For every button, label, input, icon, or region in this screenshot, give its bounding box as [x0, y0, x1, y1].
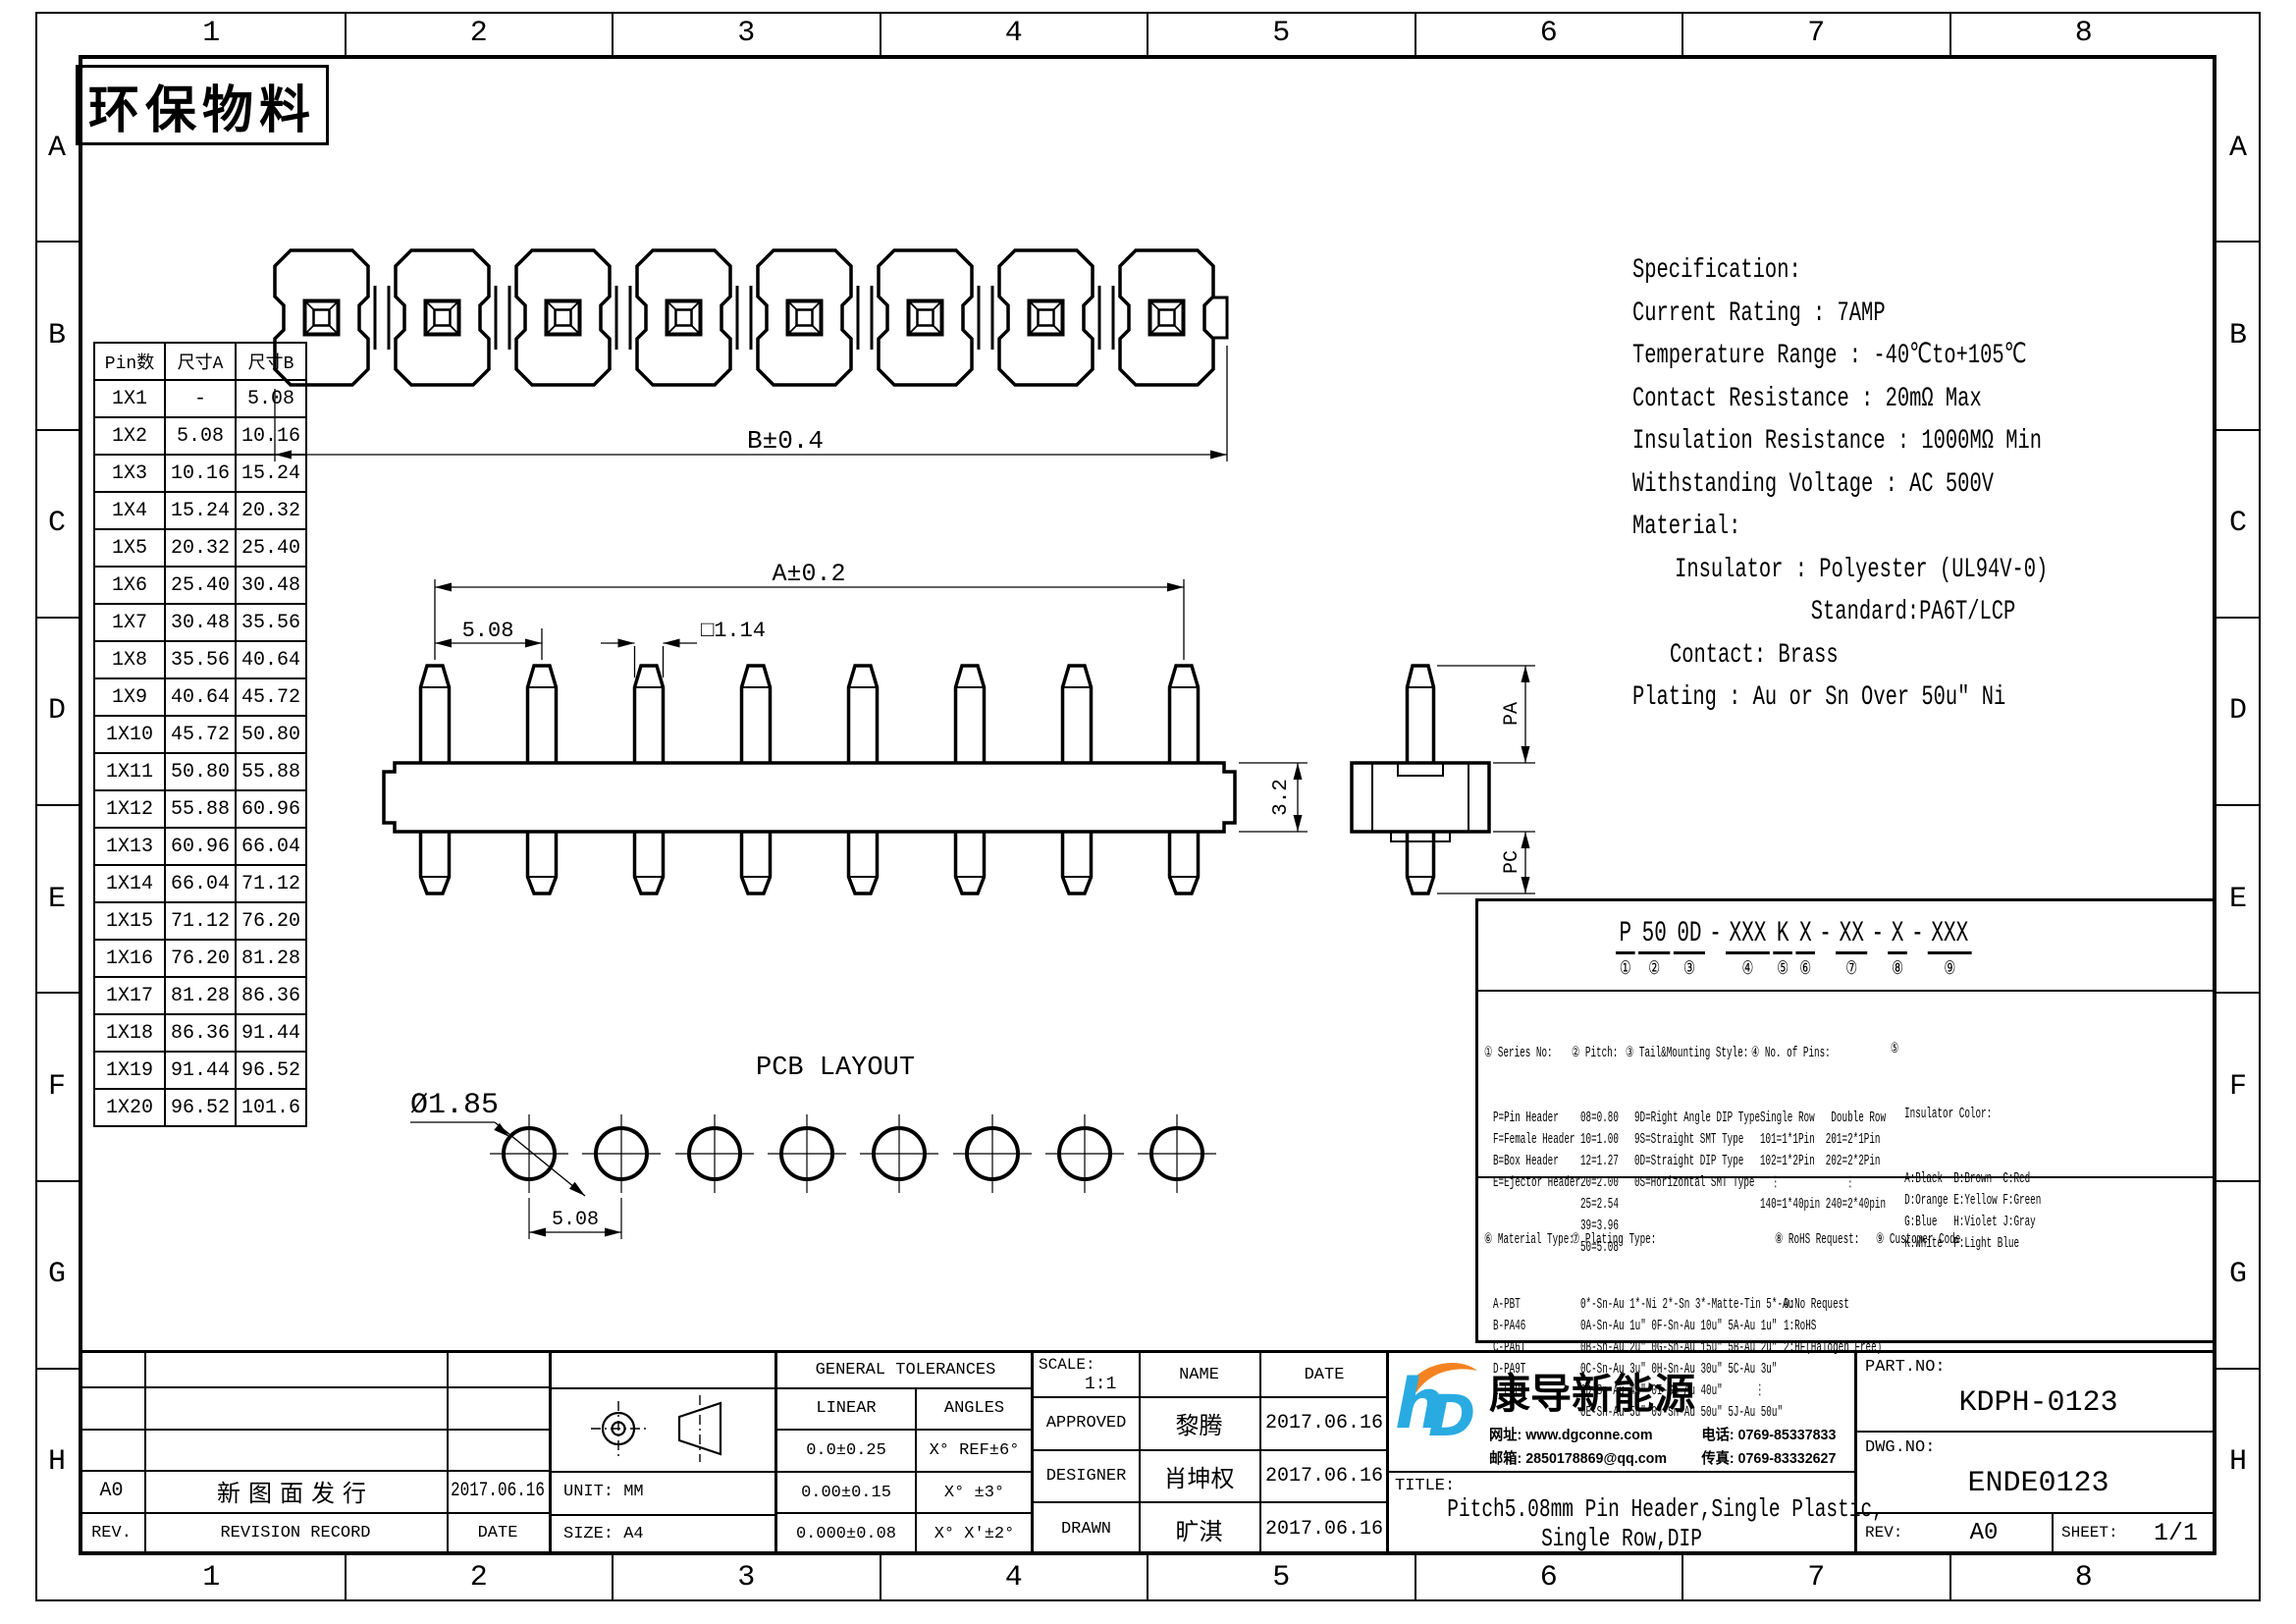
drawing-title-line2: Single Row,DIP: [1447, 1524, 1796, 1553]
signoff-rows: APPROVED 黎腾 2017.06.16 DESIGNER 肖坤权 2017…: [1034, 1396, 1389, 1554]
dim-label-pc: PC: [1501, 850, 1523, 874]
third-angle-projection-icon: [552, 1387, 774, 1471]
specification-block: Specification: Current Rating : 7AMP Tem…: [1632, 249, 2091, 720]
tolerances-row: 0.0±0.25 X° REF±6°: [777, 1429, 1034, 1471]
code-segment-index: ①: [1620, 957, 1631, 983]
legend-item: P=Pin Header: [1484, 1108, 1580, 1129]
part-info-cell: PART.NO: KDPH-0123 DWG.NO: ENDE0123 REV:…: [1854, 1353, 2216, 1554]
tolerances-row: 0.000±0.08 X° X'±2°: [777, 1512, 1034, 1554]
dimension-body-height: 3.2: [1239, 763, 1308, 832]
general-tolerances-table: GENERAL TOLERANCES LINEAR ANGLES 0.0±0.2…: [774, 1353, 1031, 1554]
legend-item: 10=1.00: [1572, 1129, 1619, 1151]
code-segment: 0D ③: [1674, 917, 1705, 983]
legend-item: 08=0.80: [1572, 1108, 1619, 1129]
legend-index: ⑤: [1891, 1039, 2041, 1060]
top-view: [275, 250, 1227, 385]
code-segment-index: ⑥: [1799, 957, 1811, 983]
dim-label-pitch: 5.08: [462, 619, 514, 643]
legend-item: 0:No Request: [1775, 1294, 1882, 1316]
company-website: 网址: www.dgconne.com: [1489, 1424, 1653, 1444]
dim-label-pa: PA: [1501, 702, 1523, 726]
code-segment-text: -: [1910, 917, 1924, 950]
legend-title: Insulator Color:: [1891, 1104, 2041, 1125]
signoff-date: 2017.06.16: [1259, 1503, 1389, 1554]
company-contact-line2: 邮箱: 2850178869@qq.com 传真: 0769-83332627: [1489, 1447, 1836, 1468]
tolerance-angle-value: X° REF±6°: [915, 1431, 1034, 1471]
code-segment-text: XXX: [1726, 917, 1770, 954]
scale-value: 1:1: [1085, 1375, 1116, 1394]
part-no-label: PART.NO:: [1865, 1358, 1946, 1377]
code-segment: K ⑤: [1773, 917, 1792, 983]
legend-item: A-PBT: [1484, 1294, 1575, 1316]
legend-title: ① Series No:: [1484, 1043, 1580, 1064]
code-segment-text: 0D: [1674, 917, 1705, 954]
front-view: [384, 666, 1235, 893]
code-segment: XXX ⑨: [1928, 917, 1972, 983]
rev-value: A0: [1916, 1512, 2052, 1554]
tolerances-title: GENERAL TOLERANCES: [777, 1353, 1034, 1387]
signoff-date: 2017.06.16: [1259, 1451, 1389, 1502]
company-name: 康导新能源: [1489, 1361, 1850, 1421]
code-segment-index: ⑧: [1892, 957, 1903, 983]
signoff-name: 肖坤权: [1139, 1451, 1259, 1502]
revision-table: A0 新图面发行 2017.06.16 REV. REVISION RECORD…: [79, 1353, 549, 1554]
code-segment: -: [1910, 917, 1924, 979]
code-segment-text: -: [1819, 917, 1833, 950]
dim-label-b: B±0.4: [747, 426, 824, 456]
specification-line: Withstanding Voltage : AC 500V: [1632, 463, 2091, 507]
legend-item: 102=1*2Pin 202=2*2Pin: [1751, 1151, 1886, 1172]
legend-item: F=Female Header: [1484, 1129, 1580, 1151]
company-title-cell: h D 康导新能源 网址: www.dgconne.com 电话: 0769-8…: [1386, 1353, 1854, 1554]
pcb-layout-title: PCB LAYOUT: [756, 1054, 915, 1083]
dim-label-pin-square: □1.14: [701, 619, 766, 643]
code-segment-index: ⑨: [1944, 957, 1955, 983]
rev-label: REV:: [1865, 1524, 1902, 1542]
drawing-title-line1: Pitch5.08mm Pin Header,Single Plastic,: [1447, 1494, 1796, 1524]
name-header: NAME: [1139, 1353, 1259, 1396]
code-segment: XXX ④: [1726, 917, 1770, 983]
code-box-divider: [1478, 990, 2214, 992]
code-segment: -: [1819, 917, 1833, 979]
title-block: A0 新图面发行 2017.06.16 REV. REVISION RECORD…: [79, 1350, 2216, 1554]
code-segment-text: K: [1773, 917, 1792, 954]
date-header: DATE: [1259, 1353, 1389, 1396]
legend-item: 1:RoHS: [1775, 1316, 1882, 1337]
specification-line: Contact Resistance : 20mΩ Max: [1632, 378, 2091, 421]
signoff-role: DESIGNER: [1034, 1451, 1139, 1502]
specification-line: Plating : Au or Sn Over 50u″ Ni: [1632, 677, 2091, 720]
dimension-pin-square: □1.14: [601, 619, 766, 677]
specification-line: Standard:PA6T/LCP: [1632, 591, 2091, 634]
revision-rev-value: A0: [79, 1470, 144, 1512]
tolerance-angle-value: X° X'±2°: [915, 1514, 1034, 1554]
legend-title: ④ No. of Pins:: [1751, 1043, 1886, 1064]
tolerance-linear-value: 0.0±0.25: [777, 1431, 915, 1471]
legend-item: 9D=Right Angle DIP Type: [1626, 1108, 1760, 1129]
pcb-layout-view: PCB LAYOUT Ø1.85 5.08: [410, 1054, 1216, 1239]
company-logo: h D: [1395, 1357, 1485, 1441]
signoff-name: 黎腾: [1139, 1398, 1259, 1449]
code-segment-text: X: [1795, 917, 1815, 954]
dwg-no-value: ENDE0123: [1857, 1459, 2219, 1508]
part-number-code-box: P ① 50 ② 0D ③ - XXX: [1475, 898, 2216, 1343]
side-view: [1352, 666, 1489, 893]
revision-rev-header: REV.: [79, 1512, 144, 1554]
specification-line: Temperature Range : -40℃to+105℃: [1632, 335, 2091, 378]
tolerances-row: 0.00±0.15 X° ±3°: [777, 1471, 1034, 1513]
dim-label-body-height: 3.2: [1270, 779, 1293, 816]
company-phone: 电话: 0769-85337833: [1701, 1424, 1836, 1444]
dim-label-a: A±0.2: [772, 560, 845, 588]
legend-item: 101=1*1Pin 201=2*1Pin: [1751, 1129, 1886, 1151]
tolerance-linear-value: 0.00±0.15: [777, 1473, 915, 1513]
signoff-row: DRAWN 旷淇 2017.06.16: [1034, 1501, 1389, 1554]
code-segment: XX ⑦: [1836, 917, 1867, 983]
signoff-name: 旷淇: [1139, 1503, 1259, 1554]
unit-label: UNIT: MM: [563, 1483, 644, 1501]
signoff-role: APPROVED: [1034, 1398, 1139, 1449]
legend-title: ⑥ Material Type:: [1484, 1229, 1575, 1251]
code-segment: X ⑧: [1888, 917, 1907, 983]
title-label: TITLE:: [1395, 1477, 1455, 1495]
legend-title: ② Pitch:: [1572, 1043, 1619, 1064]
legend-customer-code: ⑨ Customer Code: [1876, 1186, 1960, 1294]
revision-record-header: REVISION RECORD: [144, 1512, 447, 1554]
tolerances-col-linear: LINEAR: [777, 1387, 915, 1429]
dim-label-hole-dia: Ø1.85: [410, 1089, 499, 1122]
legend-title: ③ Tail&Mounting Style:: [1626, 1043, 1760, 1064]
code-segment-index: ⑦: [1845, 957, 1857, 983]
code-segment-index: ⑤: [1777, 957, 1789, 983]
legend-item: 0D=Straight DIP Type: [1626, 1151, 1760, 1172]
code-segment-text: -: [1709, 917, 1723, 950]
scale-label: SCALE:: [1039, 1356, 1095, 1374]
code-segment-text: 50: [1638, 917, 1670, 954]
projection-unit-size-cell: UNIT: MM SIZE: A4: [549, 1353, 774, 1554]
signoff-table: SCALE: 1:1 NAME DATE APPROVED 黎腾 2017.06…: [1031, 1353, 1386, 1554]
code-segment-index: ②: [1648, 957, 1660, 983]
specification-line: Insulator : Polyester (UL94V-0): [1632, 549, 2091, 592]
size-label: SIZE: A4: [563, 1525, 644, 1543]
signoff-date: 2017.06.16: [1259, 1398, 1389, 1449]
part-no-value: KDPH-0123: [1857, 1379, 2219, 1428]
dimension-pin-length-bottom: PC: [1437, 832, 1535, 893]
revision-date-header: DATE: [447, 1512, 549, 1554]
tolerance-linear-value: 0.000±0.08: [777, 1514, 915, 1554]
dwg-no-label: DWG.NO:: [1865, 1438, 1935, 1457]
tolerances-rows: 0.0±0.25 X° REF±6° 0.00±0.15 X° ±3° 0.00…: [777, 1429, 1034, 1554]
dimension-front-overall: A±0.2: [435, 560, 1184, 660]
legend-item: Single Row Double Row: [1751, 1108, 1886, 1129]
code-segment-index: ④: [1741, 957, 1753, 983]
signoff-role: DRAWN: [1034, 1503, 1139, 1554]
code-segment: X ⑥: [1795, 917, 1815, 983]
code-segment: P ①: [1616, 917, 1635, 983]
company-contact-line1: 网址: www.dgconne.com 电话: 0769-85337833: [1489, 1424, 1836, 1444]
legend-title: ⑨ Customer Code: [1876, 1229, 1960, 1251]
code-segment: -: [1871, 917, 1885, 979]
code-segment: -: [1709, 917, 1723, 979]
revision-date-value: 2017.06.16: [456, 1470, 538, 1512]
specification-line: Specification:: [1632, 249, 2091, 293]
dimension-front-pitch: 5.08: [435, 619, 542, 660]
company-email: 邮箱: 2850178869@qq.com: [1489, 1447, 1667, 1468]
code-segment-text: P: [1616, 917, 1635, 954]
legend-item: 12=1.27: [1572, 1151, 1619, 1172]
dim-label-pcb-pitch: 5.08: [552, 1209, 599, 1231]
part-number-code: P ① 50 ② 0D ③ - XXX: [1616, 917, 1972, 983]
sheet-value: 1/1: [2132, 1512, 2219, 1554]
tolerances-col-angles: ANGLES: [915, 1387, 1034, 1429]
specification-line: Contact: Brass: [1632, 634, 2091, 677]
code-segment-text: XXX: [1928, 917, 1972, 954]
legend-item: 0A-Sn-Au 1u″ 0F-Sn-Au 10u″ 5A-Au 1u″: [1572, 1316, 1793, 1337]
code-segment-text: -: [1871, 917, 1885, 950]
sheet-label: SHEET:: [2061, 1524, 2118, 1542]
revision-record-value: 新图面发行: [144, 1470, 447, 1512]
company-fax: 传真: 0769-83332627: [1701, 1447, 1836, 1468]
code-segment: 50 ②: [1638, 917, 1670, 983]
specification-line: Material:: [1632, 506, 2091, 549]
logo-d: D: [1428, 1382, 1475, 1441]
code-segment-text: XX: [1836, 917, 1867, 954]
signoff-row: APPROVED 黎腾 2017.06.16: [1034, 1396, 1389, 1449]
legend-item: 9S=Straight SMT Type: [1626, 1129, 1760, 1151]
code-segment-text: X: [1888, 917, 1907, 954]
specification-line: Insulation Resistance : 1000MΩ Min: [1632, 420, 2091, 463]
legend-title: ⑧ RoHS Request:: [1775, 1229, 1882, 1251]
legend-item: B=Box Header: [1484, 1151, 1580, 1172]
dimension-top-view-width: B±0.4: [275, 346, 1227, 461]
legend-item: 0*-Sn-Au 1*-Ni 2*-Sn 3*-Matte-Tin 5*-Au: [1572, 1294, 1793, 1316]
engineering-drawing-sheet: 12345678 12345678 ABCDEFGH ABCDEFGH 环保物料…: [0, 0, 2296, 1624]
specification-line: Current Rating : 7AMP: [1632, 293, 2091, 336]
legend-title: ⑦ Plating Type:: [1572, 1229, 1793, 1251]
tolerance-angle-value: X° ±3°: [915, 1473, 1034, 1513]
dimension-pin-length-top: PA: [1437, 666, 1535, 763]
signoff-row: DESIGNER 肖坤权 2017.06.16: [1034, 1449, 1389, 1502]
legend-item: B-PA46: [1484, 1316, 1575, 1337]
code-segment-index: ③: [1683, 957, 1695, 983]
